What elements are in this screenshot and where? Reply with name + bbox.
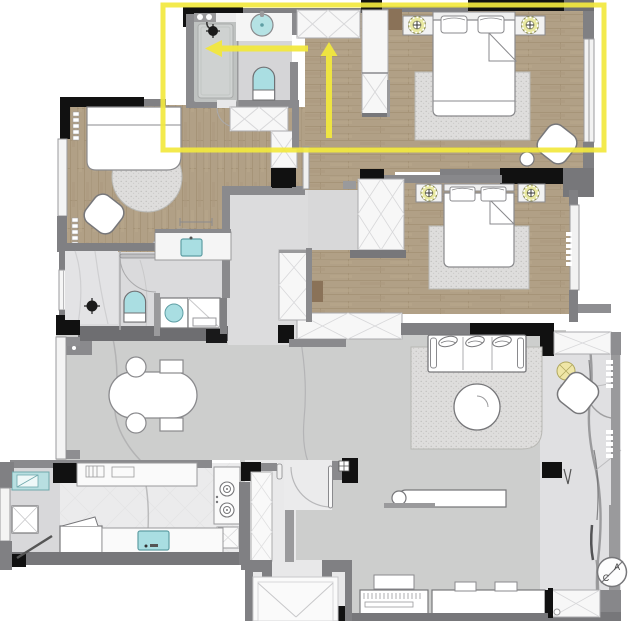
svg-text:C: C [603,573,610,583]
svg-text:A: A [614,562,620,572]
